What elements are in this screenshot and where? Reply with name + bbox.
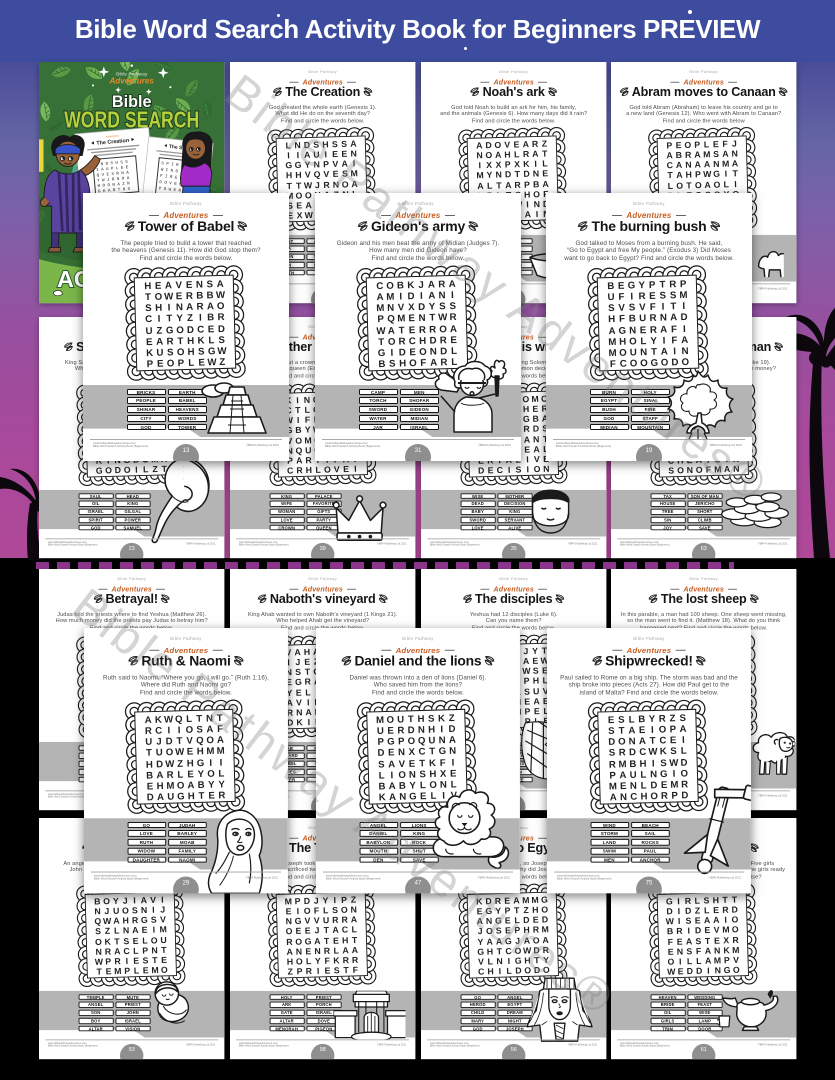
svg-text:Adventures: Adventures <box>108 77 154 86</box>
